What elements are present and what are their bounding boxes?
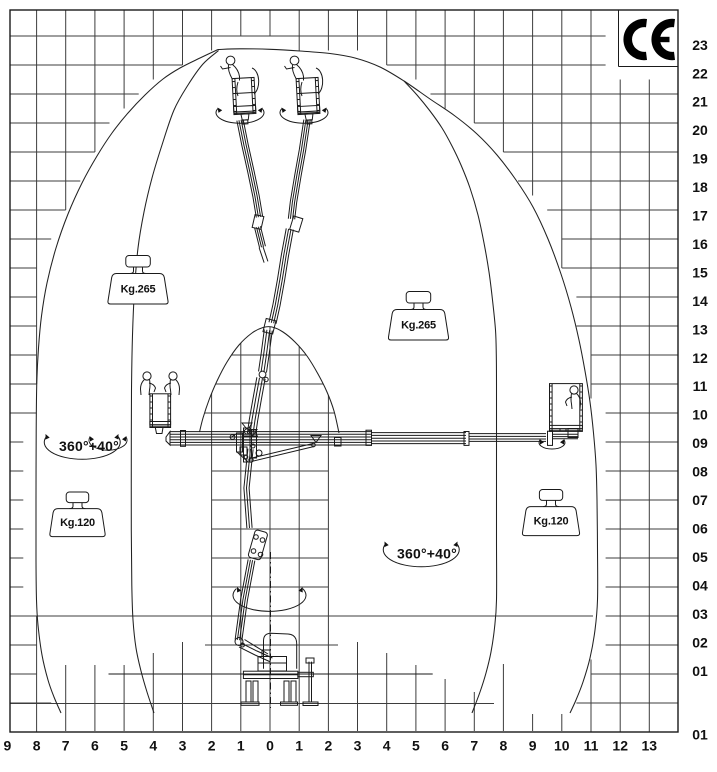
svg-text:4: 4 [383, 738, 391, 754]
svg-text:1: 1 [237, 738, 245, 754]
svg-text:02: 02 [692, 634, 708, 650]
svg-text:12: 12 [692, 350, 708, 366]
svg-text:11: 11 [584, 738, 599, 754]
svg-text:14: 14 [692, 293, 708, 309]
svg-text:01: 01 [692, 727, 708, 743]
svg-text:6: 6 [441, 738, 449, 754]
svg-text:12: 12 [612, 738, 628, 754]
svg-text:7: 7 [62, 738, 70, 754]
svg-text:5: 5 [120, 738, 128, 754]
svg-text:18: 18 [692, 179, 708, 195]
svg-text:2: 2 [208, 738, 216, 754]
svg-text:21: 21 [692, 94, 708, 110]
svg-text:05: 05 [692, 549, 708, 565]
svg-text:19: 19 [692, 151, 708, 167]
svg-text:Kg.120: Kg.120 [534, 516, 569, 528]
svg-text:07: 07 [692, 492, 708, 508]
svg-text:0: 0 [266, 738, 274, 754]
svg-text:9: 9 [529, 738, 537, 754]
svg-text:8: 8 [500, 738, 508, 754]
svg-text:20: 20 [692, 122, 708, 138]
svg-text:04: 04 [692, 577, 708, 593]
svg-text:360°+40°: 360°+40° [397, 546, 457, 562]
svg-text:01: 01 [692, 663, 708, 679]
svg-text:09: 09 [692, 435, 708, 451]
svg-text:Kg.265: Kg.265 [121, 283, 156, 295]
svg-text:7: 7 [470, 738, 478, 754]
svg-text:06: 06 [692, 521, 708, 537]
svg-text:2: 2 [325, 738, 333, 754]
svg-text:13: 13 [692, 321, 708, 337]
svg-text:Kg.265: Kg.265 [401, 319, 436, 331]
svg-text:08: 08 [692, 464, 708, 480]
svg-text:Kg.120: Kg.120 [60, 517, 95, 529]
svg-text:8: 8 [33, 738, 41, 754]
svg-text:16: 16 [692, 236, 708, 252]
svg-text:9: 9 [4, 738, 12, 754]
svg-text:17: 17 [692, 208, 708, 224]
svg-text:15: 15 [692, 264, 708, 280]
svg-text:11: 11 [693, 378, 708, 394]
svg-text:10: 10 [692, 407, 708, 423]
svg-text:3: 3 [179, 738, 187, 754]
svg-text:22: 22 [692, 65, 708, 81]
svg-text:6: 6 [91, 738, 99, 754]
svg-text:360°+40°: 360°+40° [59, 438, 119, 454]
svg-text:23: 23 [692, 37, 708, 53]
svg-text:10: 10 [554, 738, 570, 754]
svg-text:03: 03 [692, 606, 708, 622]
svg-text:4: 4 [149, 738, 157, 754]
svg-text:5: 5 [412, 738, 420, 754]
svg-text:1: 1 [295, 738, 303, 754]
svg-text:3: 3 [354, 738, 362, 754]
svg-text:13: 13 [642, 738, 658, 754]
